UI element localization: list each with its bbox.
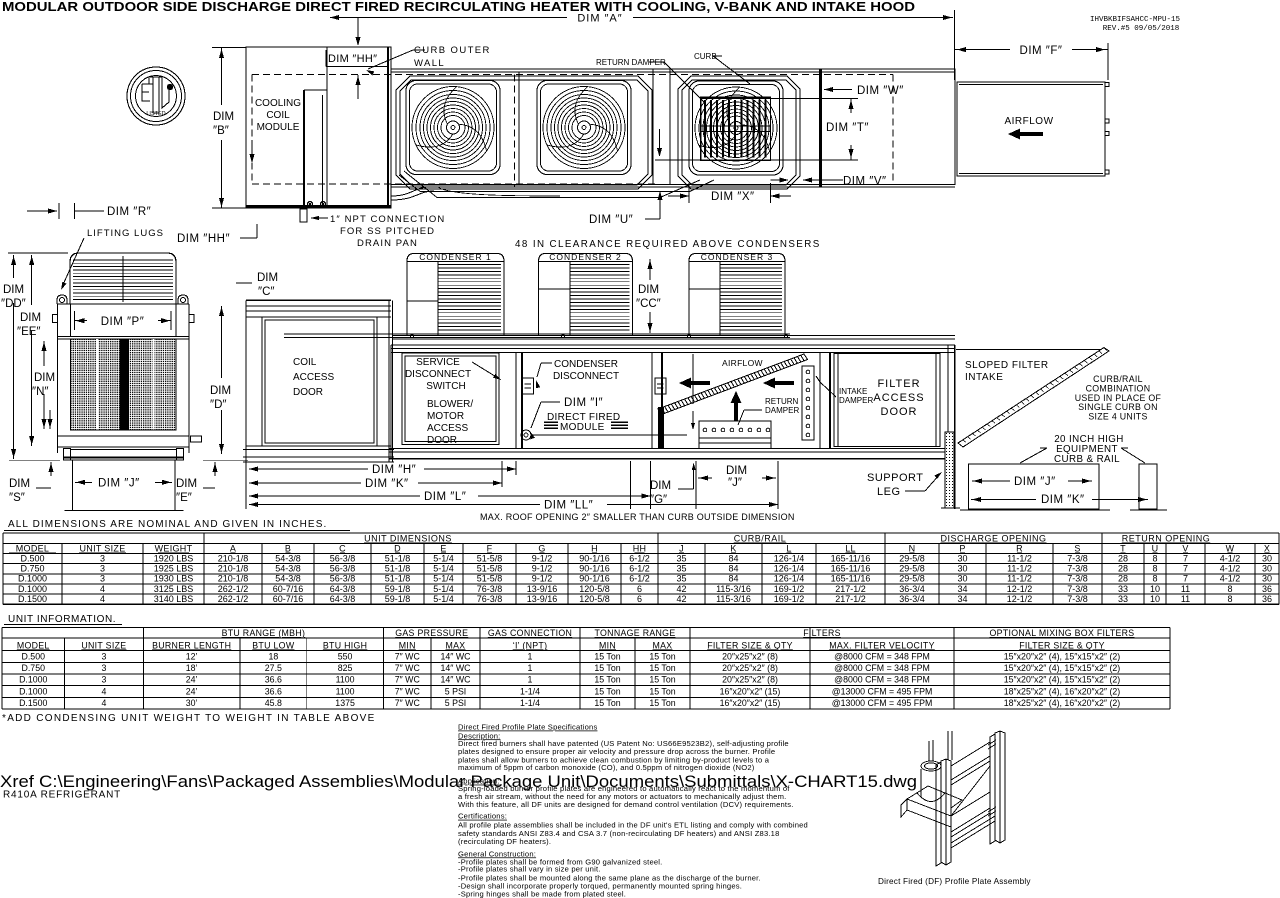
- svg-text:20″x25″x2″ (8): 20″x25″x2″ (8): [722, 675, 778, 685]
- svg-text:15 Ton: 15 Ton: [594, 651, 620, 661]
- svg-text:DIM: DIM: [650, 480, 671, 492]
- svg-text:DISCONNECT: DISCONNECT: [553, 371, 619, 382]
- svg-text:51-1/8: 51-1/8: [385, 574, 411, 584]
- svg-text:18: 18: [268, 651, 278, 661]
- svg-text:DIM ″H″: DIM ″H″: [372, 464, 416, 476]
- svg-text:1: 1: [528, 651, 533, 661]
- svg-text:D.750: D.750: [20, 564, 44, 574]
- svg-text:DIM ″A″: DIM ″A″: [577, 13, 622, 25]
- svg-text:DIM ″LL″: DIM ″LL″: [544, 500, 593, 512]
- svg-text:DIM ″K″: DIM ″K″: [365, 478, 409, 490]
- svg-text:4: 4: [100, 584, 105, 594]
- svg-text:-Spring hinges shall be made f: -Spring hinges shall be made from plated…: [458, 890, 626, 898]
- svg-text:COOLING: COOLING: [255, 98, 301, 109]
- svg-text:3140 LBS: 3140 LBS: [154, 594, 194, 604]
- svg-text:V: V: [1182, 544, 1188, 554]
- svg-text:28: 28: [1118, 574, 1128, 584]
- svg-text:1″ NPT CONNECTION: 1″ NPT CONNECTION: [330, 214, 445, 225]
- svg-text:34: 34: [957, 584, 967, 594]
- svg-text:UNIT SIZE: UNIT SIZE: [81, 640, 126, 650]
- svg-text:Direct Fired Profile Plate Spe: Direct Fired Profile Plate Specification…: [458, 723, 597, 732]
- svg-text:60-7/16: 60-7/16: [273, 594, 304, 604]
- svg-text:5-1/4: 5-1/4: [433, 584, 454, 594]
- svg-text:DOOR: DOOR: [881, 406, 918, 418]
- svg-text:LIFTING LUGS: LIFTING LUGS: [87, 228, 164, 239]
- svg-text:″G″: ″G″: [650, 494, 667, 506]
- svg-text:DIM ″T″: DIM ″T″: [826, 122, 869, 134]
- svg-text:217-1/2: 217-1/2: [835, 584, 866, 594]
- svg-text:76-3/8: 76-3/8: [477, 584, 503, 594]
- svg-text:DIM ″P″: DIM ″P″: [101, 316, 145, 328]
- svg-text:15 Ton: 15 Ton: [649, 686, 675, 696]
- svg-text:DIM ″K″: DIM ″K″: [1041, 494, 1085, 506]
- svg-text:DIM ″W″: DIM ″W″: [857, 85, 904, 97]
- svg-text:DIM ″R″: DIM ″R″: [107, 206, 151, 218]
- svg-text:7″ WC: 7″ WC: [395, 686, 421, 696]
- svg-text:ACCESS: ACCESS: [873, 392, 924, 404]
- svg-text:7″ WC: 7″ WC: [395, 651, 421, 661]
- svg-text:MODULE: MODULE: [560, 422, 605, 433]
- svg-text:″CC″: ″CC″: [636, 298, 661, 310]
- svg-text:Xref C:\Engineering\Fans\Packa: Xref C:\Engineering\Fans\Packaged Assemb…: [0, 773, 917, 791]
- svg-text:30’: 30’: [186, 698, 198, 708]
- svg-text:L: L: [786, 544, 791, 554]
- svg-text:MIN: MIN: [399, 640, 416, 650]
- svg-text:BTU RANGE (MBH): BTU RANGE (MBH): [222, 628, 306, 638]
- svg-text:15 Ton: 15 Ton: [649, 663, 675, 673]
- svg-text:5-1/4: 5-1/4: [433, 554, 454, 564]
- svg-text:7: 7: [1183, 574, 1188, 584]
- svg-text:16″x20″x2″ (15): 16″x20″x2″ (15): [720, 698, 781, 708]
- svg-text:A: A: [230, 544, 236, 554]
- svg-text:9-1/2: 9-1/2: [532, 554, 553, 564]
- svg-text:42: 42: [676, 594, 686, 604]
- svg-text:UNIT DIMENSIONS: UNIT DIMENSIONS: [364, 534, 452, 544]
- svg-text:84: 84: [728, 554, 738, 564]
- svg-text:ACCESS: ACCESS: [427, 423, 468, 434]
- svg-text:1-1/4: 1-1/4: [520, 686, 540, 696]
- svg-text:FILTER SIZE & QTY: FILTER SIZE & QTY: [707, 640, 793, 650]
- svg-text:CONDENSER 3: CONDENSER 3: [701, 252, 773, 262]
- svg-text:34: 34: [957, 594, 967, 604]
- svg-text:30: 30: [957, 554, 967, 564]
- svg-text:3: 3: [100, 574, 105, 584]
- svg-text:12-1/2: 12-1/2: [1007, 584, 1033, 594]
- svg-text:12-1/2: 12-1/2: [1007, 594, 1033, 604]
- svg-text:DISCHARGE OPENING: DISCHARGE OPENING: [940, 534, 1046, 544]
- svg-text:INTAKE: INTAKE: [839, 387, 867, 396]
- svg-text:CONDENSER 1: CONDENSER 1: [419, 252, 491, 262]
- svg-text:DIM ″X″: DIM ″X″: [711, 191, 755, 203]
- svg-text:3: 3: [100, 554, 105, 564]
- svg-text:6-1/2: 6-1/2: [629, 554, 650, 564]
- svg-text:WEIGHT: WEIGHT: [155, 544, 193, 554]
- svg-text:56-3/8: 56-3/8: [330, 564, 356, 574]
- svg-text:UNIT INFORMATION.: UNIT INFORMATION.: [8, 614, 116, 625]
- svg-text:7-3/8: 7-3/8: [1067, 564, 1088, 574]
- svg-text:90-1/16: 90-1/16: [579, 574, 610, 584]
- svg-text:169-1/2: 169-1/2: [774, 584, 805, 594]
- svg-text:4-1/2: 4-1/2: [1220, 574, 1241, 584]
- svg-text:″C″: ″C″: [258, 286, 274, 298]
- svg-text:D.500: D.500: [20, 554, 44, 564]
- svg-text:7: 7: [1183, 554, 1188, 564]
- svg-text:120-5/8: 120-5/8: [579, 594, 610, 604]
- svg-text:GAS PRESSURE: GAS PRESSURE: [395, 628, 468, 638]
- svg-text:11-1/2: 11-1/2: [1007, 564, 1032, 574]
- svg-text:126-1/4: 126-1/4: [774, 564, 805, 574]
- svg-text:1920 LBS: 1920 LBS: [154, 554, 194, 564]
- svg-text:‘I’ (NPT): ‘I’ (NPT): [513, 640, 548, 650]
- svg-text:4: 4: [101, 698, 106, 708]
- svg-text:RETURN OPENING: RETURN OPENING: [1122, 534, 1211, 544]
- svg-text:36.6: 36.6: [265, 686, 282, 696]
- svg-text:28: 28: [1118, 564, 1128, 574]
- svg-text:MOTOR: MOTOR: [427, 411, 464, 422]
- svg-text:28: 28: [1118, 554, 1128, 564]
- svg-text:LISTED: LISTED: [146, 111, 165, 117]
- svg-text:LEG: LEG: [877, 486, 901, 498]
- svg-text:10: 10: [1150, 584, 1160, 594]
- svg-text:REV.#5 09/05/2018: REV.#5 09/05/2018: [1103, 25, 1180, 33]
- svg-text:90-1/16: 90-1/16: [579, 564, 610, 574]
- svg-text:″N″: ″N″: [32, 386, 48, 398]
- svg-text:DAMPER: DAMPER: [765, 406, 799, 415]
- svg-text:8: 8: [1227, 584, 1232, 594]
- svg-text:15 Ton: 15 Ton: [594, 686, 620, 696]
- svg-text:@13000 CFM = 495 FPM: @13000 CFM = 495 FPM: [832, 686, 933, 696]
- svg-text:MODEL: MODEL: [16, 544, 50, 554]
- svg-text:18’: 18’: [186, 663, 198, 673]
- svg-text:4: 4: [101, 686, 106, 696]
- svg-text:@8000 CFM = 348 FPM: @8000 CFM = 348 FPM: [834, 651, 930, 661]
- svg-text:169-1/2: 169-1/2: [774, 594, 805, 604]
- svg-text:DIM: DIM: [257, 272, 278, 284]
- svg-text:WALL: WALL: [414, 58, 445, 69]
- svg-text:MAX. ROOF OPENING 2″ SMALLER T: MAX. ROOF OPENING 2″ SMALLER THAN CURB O…: [480, 512, 795, 522]
- svg-text:AIRFLOW: AIRFLOW: [722, 358, 763, 368]
- svg-text:U: U: [1152, 544, 1159, 554]
- svg-text:1100: 1100: [336, 686, 355, 696]
- svg-text:7″ WC: 7″ WC: [395, 663, 421, 673]
- svg-text:″J″: ″J″: [728, 477, 742, 489]
- svg-text:FILTERS: FILTERS: [803, 628, 841, 638]
- svg-text:5-1/4: 5-1/4: [433, 564, 454, 574]
- svg-text:C: C: [339, 544, 346, 554]
- svg-text:W: W: [1226, 544, 1235, 554]
- svg-text:30: 30: [1262, 574, 1272, 584]
- svg-text:59-1/8: 59-1/8: [385, 584, 411, 594]
- svg-text:K: K: [730, 544, 736, 554]
- svg-text:D.1000: D.1000: [19, 675, 47, 685]
- svg-text:11-1/2: 11-1/2: [1007, 554, 1032, 564]
- svg-text:13-9/16: 13-9/16: [527, 584, 558, 594]
- svg-text:3125 LBS: 3125 LBS: [154, 584, 194, 594]
- svg-text:7-3/8: 7-3/8: [1067, 574, 1088, 584]
- svg-text:HH: HH: [633, 544, 647, 554]
- svg-text:FILTER SIZE & QTY: FILTER SIZE & QTY: [1019, 640, 1105, 650]
- svg-text:F: F: [487, 544, 493, 554]
- svg-text:30: 30: [1262, 554, 1272, 564]
- svg-text:MODULE: MODULE: [257, 122, 300, 133]
- svg-text:126-1/4: 126-1/4: [774, 574, 805, 584]
- svg-text:30: 30: [957, 564, 967, 574]
- svg-text:Certifications:: Certifications:: [458, 812, 507, 821]
- svg-text:T: T: [1120, 544, 1126, 554]
- svg-text:BTU LOW: BTU LOW: [252, 640, 295, 650]
- svg-text:″B″: ″B″: [213, 125, 229, 137]
- svg-text:10: 10: [1150, 594, 1160, 604]
- svg-text:FILTER: FILTER: [877, 378, 920, 390]
- svg-text:165-11/16: 165-11/16: [831, 554, 871, 564]
- svg-text:GAS CONNECTION: GAS CONNECTION: [488, 628, 572, 638]
- svg-text:maximum of 5ppm of carbon mono: maximum of 5ppm of carbon monoxide (CO),…: [458, 763, 755, 772]
- svg-text:D.500: D.500: [22, 651, 46, 661]
- svg-text:1-1/4: 1-1/4: [520, 698, 540, 708]
- svg-text:56-3/8: 56-3/8: [330, 574, 356, 584]
- svg-text:DIM ″F″: DIM ″F″: [1020, 45, 1063, 57]
- svg-text:″EE″: ″EE″: [17, 326, 40, 338]
- svg-text:165-11/16: 165-11/16: [831, 564, 871, 574]
- svg-text:D.1000: D.1000: [19, 686, 47, 696]
- svg-text:6-1/2: 6-1/2: [629, 564, 650, 574]
- svg-text:@8000 CFM = 348 FPM: @8000 CFM = 348 FPM: [834, 663, 930, 673]
- svg-text:20″x25″x2″ (8): 20″x25″x2″ (8): [722, 651, 778, 661]
- svg-text:36-3/4: 36-3/4: [899, 594, 925, 604]
- svg-text:(recirculating DF heaters).: (recirculating DF heaters).: [458, 837, 551, 846]
- svg-text:DIM: DIM: [176, 478, 197, 490]
- svg-text:9-1/2: 9-1/2: [532, 574, 553, 584]
- svg-text:64-3/8: 64-3/8: [330, 594, 356, 604]
- svg-text:30: 30: [957, 574, 967, 584]
- svg-text:IHVBKBIFSAHCC-MPU-15: IHVBKBIFSAHCC-MPU-15: [1090, 16, 1181, 24]
- svg-text:9-1/2: 9-1/2: [532, 564, 553, 574]
- svg-text:MODEL: MODEL: [17, 640, 50, 650]
- svg-text:ALL DIMENSIONS ARE NOMINAL AND: ALL DIMENSIONS ARE NOMINAL AND GIVEN IN …: [8, 519, 327, 530]
- svg-text:D.1500: D.1500: [19, 698, 47, 708]
- svg-text:3: 3: [100, 564, 105, 574]
- svg-text:15 Ton: 15 Ton: [594, 663, 620, 673]
- svg-text:RETURN: RETURN: [765, 397, 799, 406]
- svg-text:DIM ″J″: DIM ″J″: [1014, 476, 1056, 488]
- svg-text:″E″: ″E″: [176, 492, 192, 504]
- svg-text:@13000 CFM = 495 FPM: @13000 CFM = 495 FPM: [832, 698, 933, 708]
- svg-text:6-1/2: 6-1/2: [629, 574, 650, 584]
- svg-text:INTAKE: INTAKE: [965, 372, 1003, 383]
- svg-text:@8000 CFM = 348 FPM: @8000 CFM = 348 FPM: [834, 675, 930, 685]
- svg-text:BURNER LENGTH: BURNER LENGTH: [152, 640, 231, 650]
- svg-text:ACCESS: ACCESS: [293, 372, 334, 383]
- svg-text:5 PSI: 5 PSI: [445, 698, 467, 708]
- svg-text:18″x25″x2″ (4), 16″x20″x2″ (2): 18″x25″x2″ (4), 16″x20″x2″ (2): [1004, 698, 1121, 708]
- svg-text:3: 3: [101, 663, 106, 673]
- svg-text:54-3/8: 54-3/8: [275, 554, 301, 564]
- svg-text:7: 7: [1183, 564, 1188, 574]
- svg-text:N: N: [909, 544, 916, 554]
- svg-text:15 Ton: 15 Ton: [594, 675, 620, 685]
- svg-text:35: 35: [676, 554, 686, 564]
- svg-text:33: 33: [1118, 594, 1128, 604]
- svg-text:11: 11: [1181, 584, 1190, 594]
- svg-text:262-1/2: 262-1/2: [218, 584, 249, 594]
- svg-text:3: 3: [101, 675, 106, 685]
- svg-text:8: 8: [1152, 574, 1157, 584]
- svg-text:DIM: DIM: [9, 478, 30, 490]
- svg-text:5 PSI: 5 PSI: [445, 686, 467, 696]
- svg-text:13-9/16: 13-9/16: [527, 594, 558, 604]
- svg-text:217-1/2: 217-1/2: [835, 594, 866, 604]
- svg-text:DIM: DIM: [210, 385, 231, 397]
- svg-text:29-5/8: 29-5/8: [899, 574, 925, 584]
- svg-text:4-1/2: 4-1/2: [1220, 554, 1241, 564]
- svg-text:33: 33: [1118, 584, 1128, 594]
- svg-text:1: 1: [528, 663, 533, 673]
- svg-text:165-11/16: 165-11/16: [831, 574, 871, 584]
- svg-text:SUPPORT: SUPPORT: [867, 472, 923, 484]
- svg-text:DIM ″HH″: DIM ″HH″: [177, 233, 230, 245]
- svg-text:1375: 1375: [335, 698, 355, 708]
- svg-text:J: J: [679, 544, 684, 554]
- svg-text:90-1/16: 90-1/16: [579, 554, 610, 564]
- svg-text:AIRFLOW: AIRFLOW: [1004, 116, 1053, 127]
- svg-text:DIM ″HH″: DIM ″HH″: [328, 53, 377, 65]
- svg-text:51-1/8: 51-1/8: [385, 564, 411, 574]
- svg-text:3: 3: [101, 651, 106, 661]
- svg-text:15 Ton: 15 Ton: [649, 675, 675, 685]
- svg-text:6: 6: [637, 584, 642, 594]
- svg-text:DIM ″U″: DIM ″U″: [589, 214, 633, 226]
- svg-text:56-3/8: 56-3/8: [330, 554, 356, 564]
- svg-text:DIM ″J″: DIM ″J″: [98, 478, 140, 490]
- svg-text:15 Ton: 15 Ton: [649, 698, 675, 708]
- svg-text:7-3/8: 7-3/8: [1067, 584, 1088, 594]
- svg-text:MODULAR OUTDOOR SIDE DISCHARGE: MODULAR OUTDOOR SIDE DISCHARGE DIRECT FI…: [2, 0, 915, 14]
- svg-text:36-3/4: 36-3/4: [899, 584, 925, 594]
- svg-text:COIL: COIL: [266, 110, 290, 121]
- svg-text:7″ WC: 7″ WC: [395, 698, 421, 708]
- svg-text:7-3/8: 7-3/8: [1067, 594, 1088, 604]
- svg-text:X: X: [1264, 544, 1270, 554]
- svg-text:With this feature, all DF unit: With this feature, all DF units are desi…: [458, 800, 794, 809]
- svg-text:15 Ton: 15 Ton: [594, 698, 620, 708]
- svg-text:DIM ″L″: DIM ″L″: [424, 491, 466, 503]
- svg-text:D.1500: D.1500: [18, 594, 47, 604]
- svg-text:30: 30: [1262, 564, 1272, 574]
- svg-text:G: G: [538, 544, 545, 554]
- svg-text:CURB & RAIL: CURB & RAIL: [1054, 454, 1120, 465]
- svg-text:R: R: [1016, 544, 1023, 554]
- svg-text:1925 LBS: 1925 LBS: [154, 564, 194, 574]
- svg-text:16″x20″x2″ (15): 16″x20″x2″ (15): [720, 686, 781, 696]
- svg-text:51-5/8: 51-5/8: [477, 554, 503, 564]
- svg-text:SLOPED FILTER: SLOPED FILTER: [965, 360, 1049, 371]
- svg-text:120-5/8: 120-5/8: [579, 584, 610, 594]
- svg-text:UNIT SIZE: UNIT SIZE: [79, 544, 125, 554]
- svg-text:115-3/16: 115-3/16: [716, 594, 751, 604]
- svg-text:5-1/4: 5-1/4: [433, 594, 454, 604]
- svg-text:MAX. FILTER VELOCITY: MAX. FILTER VELOCITY: [829, 640, 935, 650]
- svg-text:7-3/8: 7-3/8: [1067, 554, 1088, 564]
- svg-text:35: 35: [676, 564, 686, 574]
- svg-text:CONDENSER 2: CONDENSER 2: [549, 252, 621, 262]
- svg-text:DRAIN PAN: DRAIN PAN: [357, 238, 418, 249]
- svg-text:SIZE 4 UNITS: SIZE 4 UNITS: [1088, 412, 1147, 422]
- svg-text:*ADD CONDENSING UNIT WEIGHT TO: *ADD CONDENSING UNIT WEIGHT TO WEIGHT IN…: [2, 713, 376, 724]
- svg-text:262-1/2: 262-1/2: [218, 594, 249, 604]
- svg-text:″DD″: ″DD″: [1, 298, 26, 310]
- svg-text:36: 36: [1262, 594, 1272, 604]
- svg-text:S: S: [1074, 544, 1080, 554]
- svg-text:20″x25″x2″ (8): 20″x25″x2″ (8): [722, 663, 778, 673]
- svg-text:E: E: [440, 544, 446, 554]
- svg-text:DIM: DIM: [34, 372, 55, 384]
- svg-text:4-1/2: 4-1/2: [1220, 564, 1241, 574]
- svg-text:OPTIONAL MIXING BOX FILTERS: OPTIONAL MIXING BOX FILTERS: [990, 628, 1135, 638]
- svg-text:P: P: [959, 544, 965, 554]
- svg-text:84: 84: [728, 574, 738, 584]
- svg-text:15″x20″x2″ (4), 15″x15″x2″ (2): 15″x20″x2″ (4), 15″x15″x2″ (2): [1004, 651, 1121, 661]
- svg-text:35: 35: [676, 574, 686, 584]
- svg-text:DIM: DIM: [3, 284, 24, 296]
- svg-text:DIM ″I″: DIM ″I″: [564, 397, 603, 409]
- svg-text:R410A REFRIGERANT: R410A REFRIGERANT: [3, 790, 121, 801]
- svg-text:″S″: ″S″: [9, 492, 25, 504]
- svg-text:CURB OUTER: CURB OUTER: [414, 45, 491, 56]
- svg-text:51-5/8: 51-5/8: [477, 564, 503, 574]
- svg-text:4: 4: [100, 594, 105, 604]
- svg-text:D: D: [394, 544, 401, 554]
- svg-text:DOOR: DOOR: [293, 387, 323, 398]
- svg-text:MAX: MAX: [446, 640, 466, 650]
- svg-text:54-3/8: 54-3/8: [275, 574, 301, 584]
- svg-text:1: 1: [528, 675, 533, 685]
- svg-text:550: 550: [338, 651, 353, 661]
- svg-text:8: 8: [1227, 594, 1232, 604]
- svg-text:27.5: 27.5: [265, 663, 282, 673]
- svg-text:64-3/8: 64-3/8: [330, 584, 356, 594]
- svg-text:B: B: [285, 544, 291, 554]
- svg-text:DOOR: DOOR: [427, 435, 457, 446]
- svg-text:SWITCH: SWITCH: [426, 381, 465, 392]
- svg-text:51-1/8: 51-1/8: [385, 554, 411, 564]
- svg-text:210-1/8: 210-1/8: [218, 554, 249, 564]
- svg-text:DIM: DIM: [213, 111, 234, 123]
- svg-text:18″x25″x2″ (4), 16″x20″x2″ (2): 18″x25″x2″ (4), 16″x20″x2″ (2): [1004, 686, 1121, 696]
- svg-text:825: 825: [338, 663, 353, 673]
- svg-text:MAX: MAX: [653, 640, 673, 650]
- svg-text:12’: 12’: [186, 651, 198, 661]
- svg-text:COIL: COIL: [293, 357, 317, 368]
- svg-text:210-1/8: 210-1/8: [218, 574, 249, 584]
- svg-text:BTU HIGH: BTU HIGH: [323, 640, 367, 650]
- svg-text:126-1/4: 126-1/4: [774, 554, 805, 564]
- svg-text:-Profile plates shall vary in: -Profile plates shall vary in size per u…: [458, 865, 601, 874]
- svg-text:11: 11: [1181, 594, 1190, 604]
- svg-text:D.1000: D.1000: [18, 584, 47, 594]
- svg-text:DAMPER: DAMPER: [839, 396, 873, 405]
- svg-text:42: 42: [676, 584, 686, 594]
- svg-text:15″x20″x2″ (4), 15″x15″x2″ (2): 15″x20″x2″ (4), 15″x15″x2″ (2): [1004, 675, 1121, 685]
- svg-text:76-3/8: 76-3/8: [477, 594, 503, 604]
- svg-text:Direct Fired (DF) Profile Plat: Direct Fired (DF) Profile Plate Assembly: [878, 877, 1031, 886]
- svg-text:D.1000: D.1000: [18, 574, 47, 584]
- svg-text:24’: 24’: [186, 686, 198, 696]
- svg-text:CURB/RAIL: CURB/RAIL: [734, 534, 787, 544]
- svg-text:1930 LBS: 1930 LBS: [154, 574, 194, 584]
- svg-text:84: 84: [728, 564, 738, 574]
- svg-text:CONDENSER: CONDENSER: [554, 359, 618, 370]
- svg-text:210-1/8: 210-1/8: [218, 564, 249, 574]
